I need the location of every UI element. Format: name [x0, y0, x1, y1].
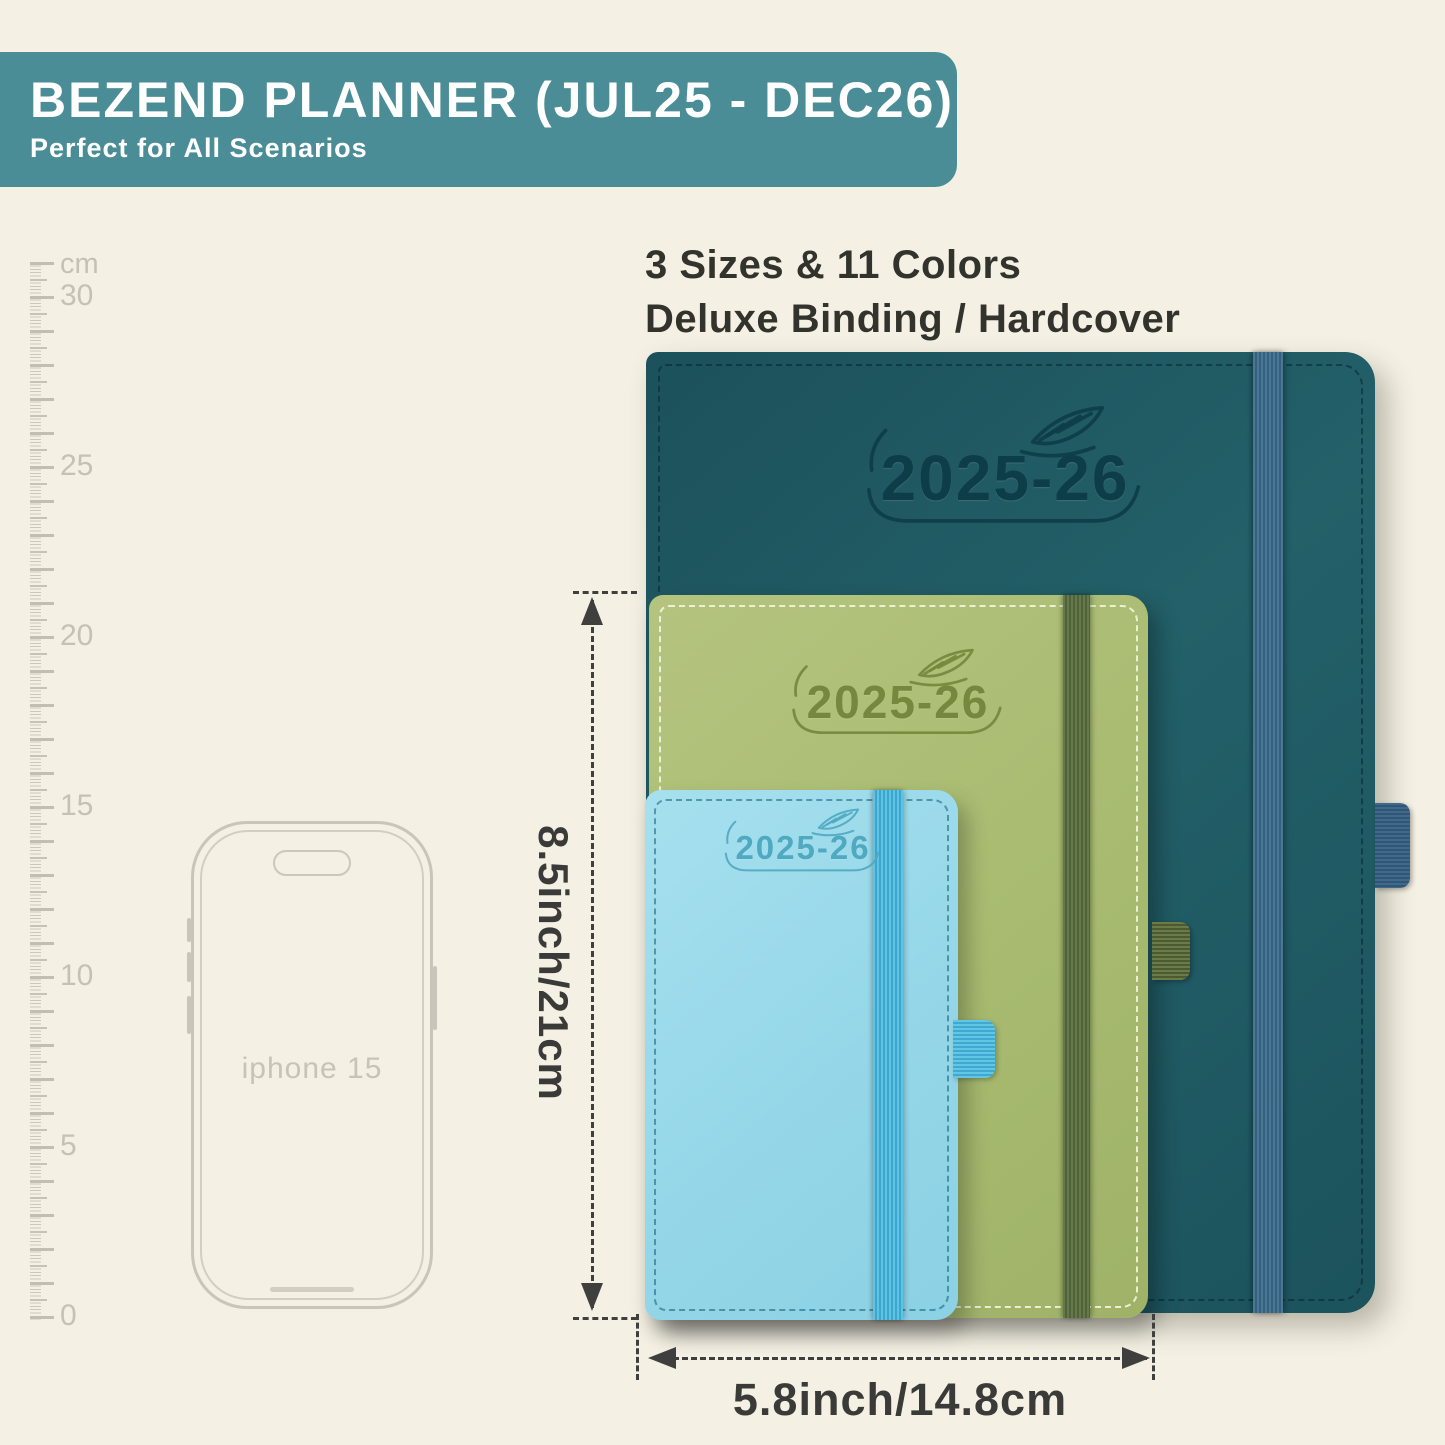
iphone-power-button [433, 966, 437, 1030]
dimension-tick-left [636, 1314, 639, 1380]
cover-logo: 2025-26 [855, 405, 1155, 535]
ruler-label-15: 15 [60, 789, 93, 823]
pen-loop [1375, 803, 1410, 888]
arrow-right-icon [1122, 1347, 1150, 1369]
iphone-dynamic-island [273, 850, 351, 876]
iphone-mute-switch [187, 918, 191, 942]
planner-small-blue: 2025-26 [645, 790, 958, 1320]
info-line-sizes: 3 Sizes & 11 Colors [645, 238, 1180, 292]
ruler-label-0: 0 [60, 1299, 77, 1333]
elastic-band [1063, 595, 1090, 1318]
ruler-label-20: 20 [60, 619, 93, 653]
year-label: 2025-26 [881, 441, 1130, 515]
iphone-outline: iphone 15 [191, 821, 433, 1309]
dimension-tick-top [573, 591, 637, 594]
banner-title: BEZEND PLANNER (JUL25 - DEC26) [30, 72, 957, 128]
iphone-volume-down-button [187, 996, 191, 1034]
height-dimension-label: 8.5inch/21cm [529, 825, 577, 1101]
cover-logo: 2025-26 [783, 648, 1013, 743]
ruler-label-25: 25 [60, 449, 93, 483]
dimension-tick-right [1152, 1314, 1155, 1380]
dimension-tick-bottom [573, 1317, 637, 1320]
year-label: 2025-26 [735, 829, 870, 867]
pen-loop [953, 1020, 995, 1078]
dimension-line-vertical [591, 600, 594, 1308]
iphone-volume-up-button [187, 952, 191, 982]
ruler-unit-label: cm [60, 248, 99, 281]
info-text: 3 Sizes & 11 Colors Deluxe Binding / Har… [645, 238, 1180, 346]
banner-subtitle: Perfect for All Scenarios [30, 133, 957, 164]
info-line-binding: Deluxe Binding / Hardcover [645, 292, 1180, 346]
left-bracket [795, 667, 806, 696]
ruler-ticks [30, 262, 54, 1320]
iphone-label: iphone 15 [194, 1052, 430, 1086]
banner: BEZEND PLANNER (JUL25 - DEC26) Perfect f… [0, 52, 957, 187]
product-infographic: BEZEND PLANNER (JUL25 - DEC26) Perfect f… [0, 0, 1445, 1445]
cover-logo: 2025-26 [718, 808, 888, 878]
arrow-down-icon [581, 1283, 603, 1311]
iphone-port-bar [270, 1287, 354, 1292]
elastic-band [1253, 352, 1283, 1313]
width-dimension-label: 5.8inch/14.8cm [660, 1374, 1140, 1426]
ruler-label-10: 10 [60, 959, 93, 993]
pen-loop [1152, 922, 1190, 980]
arrow-left-icon [648, 1347, 676, 1369]
ruler-label-30: 30 [60, 279, 93, 313]
ruler-label-5: 5 [60, 1129, 77, 1163]
year-label: 2025-26 [807, 675, 990, 729]
arrow-up-icon [581, 597, 603, 625]
dimension-line-horizontal [655, 1357, 1147, 1360]
